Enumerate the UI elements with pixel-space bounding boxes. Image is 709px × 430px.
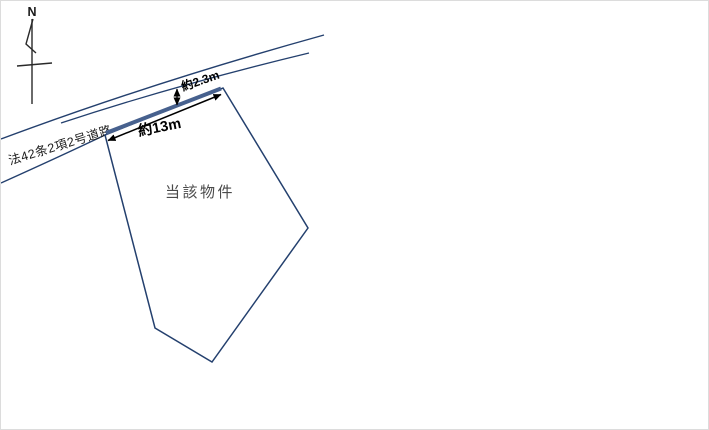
north-label: N (27, 5, 36, 19)
north-indicator: N (17, 5, 52, 104)
site-plan-canvas: N 法42条2項2号道路 当該物件 約13m 約2.3m (0, 0, 709, 430)
north-arrow-needle-icon (26, 19, 36, 53)
parcel-label: 当該物件 (165, 184, 235, 201)
site-plan-svg: N 法42条2項2号道路 当該物件 約13m 約2.3m (1, 1, 709, 430)
north-arrow-crossbar (17, 63, 52, 66)
road-name-label: 法42条2項2号道路 (6, 122, 113, 168)
